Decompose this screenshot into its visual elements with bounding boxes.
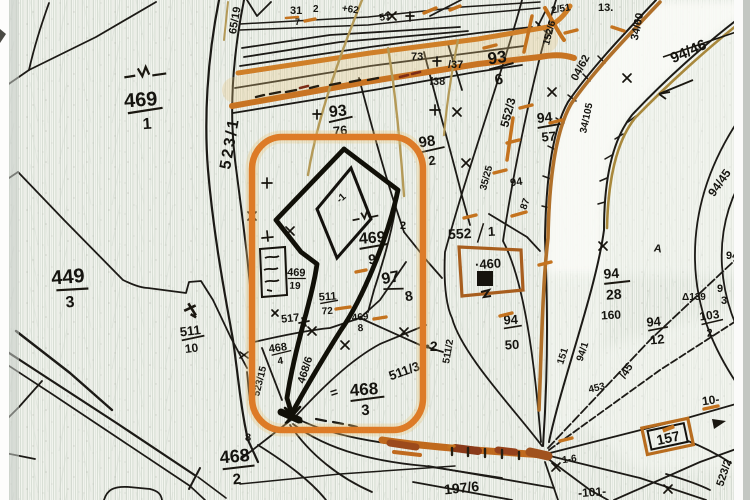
svg-text:31: 31 xyxy=(290,5,302,17)
svg-text:28: 28 xyxy=(605,286,622,303)
svg-text:552: 552 xyxy=(448,225,472,242)
svg-text:2: 2 xyxy=(400,220,406,232)
svg-text:160: 160 xyxy=(601,307,622,322)
svg-text:2: 2 xyxy=(313,4,319,15)
svg-text:1: 1 xyxy=(488,224,496,239)
svg-text:/37: /37 xyxy=(448,59,463,71)
svg-text:1: 1 xyxy=(142,116,152,134)
svg-text:3: 3 xyxy=(361,402,371,420)
svg-text:50: 50 xyxy=(504,337,519,353)
svg-text:3: 3 xyxy=(721,295,727,307)
svg-text:10: 10 xyxy=(184,340,199,356)
svg-text:-101-: -101- xyxy=(578,484,607,500)
svg-text:1-6: 1-6 xyxy=(562,453,578,466)
svg-text:12: 12 xyxy=(649,331,665,347)
svg-text:Δ139: Δ139 xyxy=(682,292,706,303)
svg-text:517: 517 xyxy=(281,312,301,326)
svg-text:8: 8 xyxy=(245,432,251,444)
svg-text:9: 9 xyxy=(717,283,723,295)
svg-text:468: 468 xyxy=(349,379,379,400)
svg-text:19: 19 xyxy=(289,281,301,293)
svg-text:468: 468 xyxy=(219,445,251,468)
svg-text:13.: 13. xyxy=(598,2,613,14)
svg-text:72: 72 xyxy=(321,306,333,318)
svg-text:·460: ·460 xyxy=(475,255,502,272)
svg-text:94: 94 xyxy=(603,265,620,282)
svg-text:94: 94 xyxy=(646,314,662,330)
svg-text:7: 7 xyxy=(295,17,300,27)
svg-text:/38: /38 xyxy=(430,76,445,88)
svg-text:57: 57 xyxy=(541,128,557,144)
svg-text:3: 3 xyxy=(65,294,75,312)
svg-text:73: 73 xyxy=(411,51,423,63)
svg-text:469: 469 xyxy=(287,266,306,279)
svg-text:449: 449 xyxy=(50,265,85,290)
svg-text:2: 2 xyxy=(232,471,242,489)
svg-text:97: 97 xyxy=(380,268,401,288)
